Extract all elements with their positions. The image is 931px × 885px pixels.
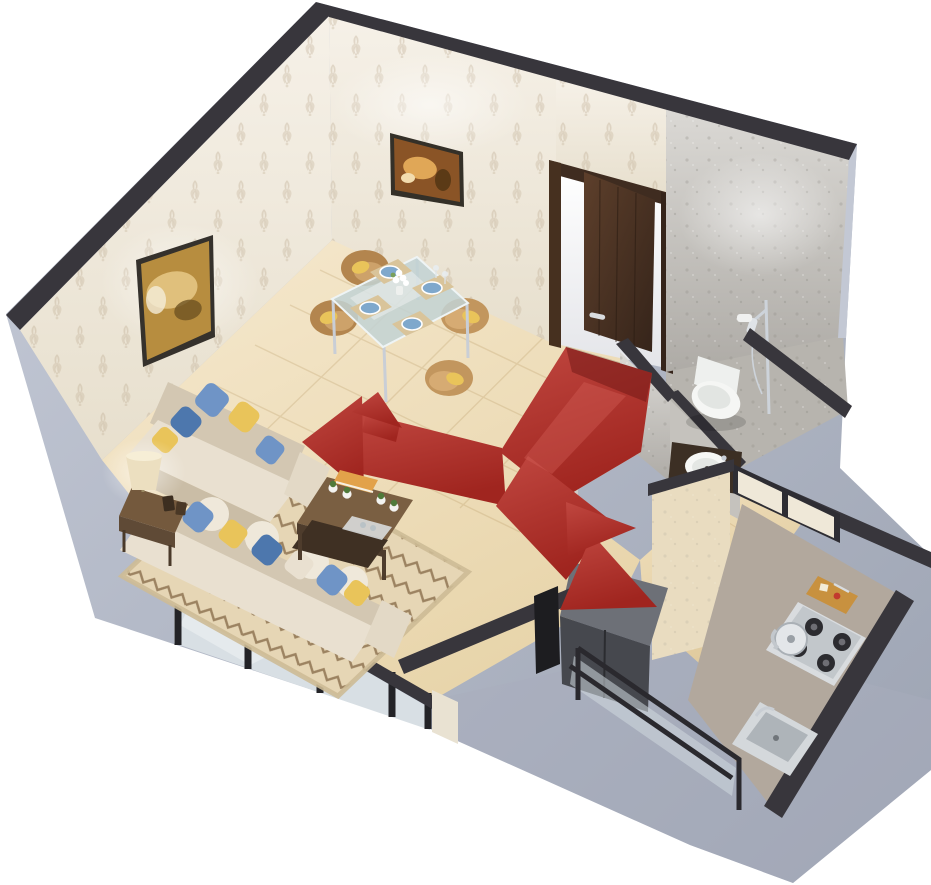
entry-door-panel xyxy=(584,172,655,352)
basin-faucet xyxy=(721,455,726,460)
back-wall-light xyxy=(330,53,530,157)
picture-frame xyxy=(162,495,175,511)
foyer-wall-gap xyxy=(534,586,560,674)
floor-plan-3d xyxy=(0,0,931,885)
dining-chair xyxy=(425,360,473,396)
bathroom-wall-light xyxy=(678,153,842,277)
picture-frame xyxy=(175,502,186,516)
table-lamp xyxy=(126,451,162,492)
door-jamb-left xyxy=(549,160,561,348)
